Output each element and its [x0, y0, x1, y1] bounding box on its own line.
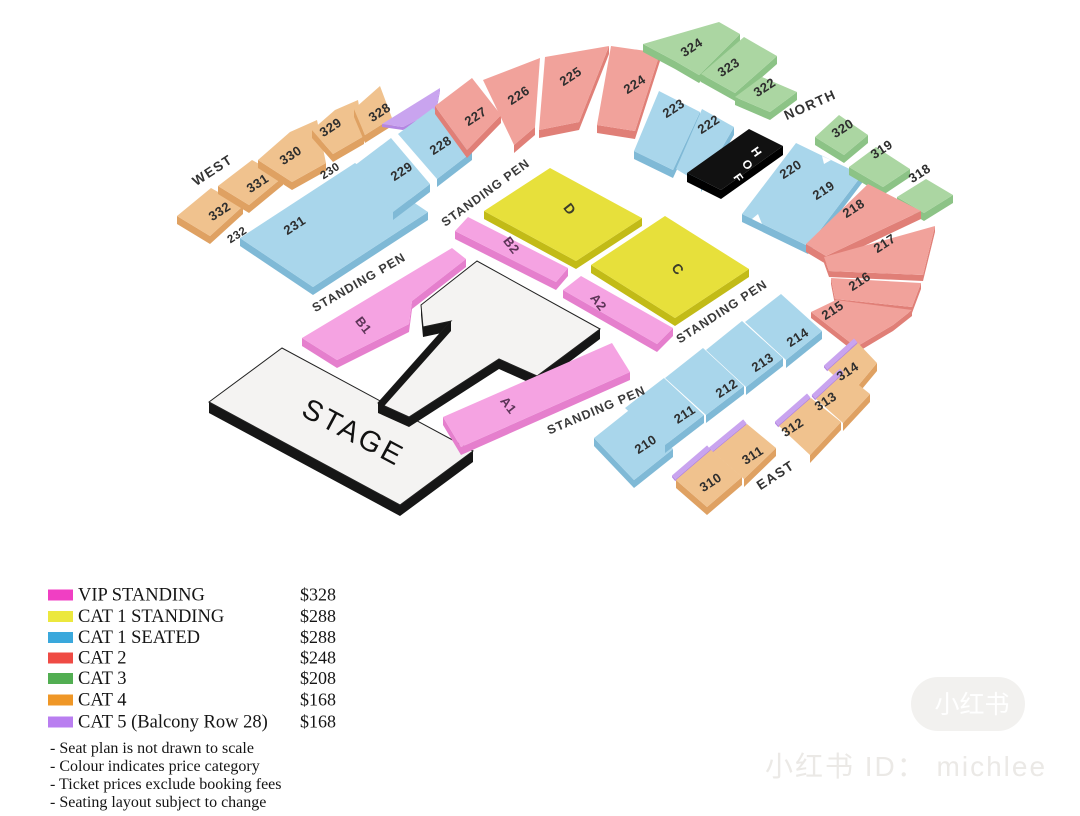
svg-text:$168: $168	[300, 712, 336, 732]
svg-text:CAT 1 SEATED: CAT 1 SEATED	[78, 628, 200, 648]
svg-text:$168: $168	[300, 690, 336, 710]
svg-text:CAT 3: CAT 3	[78, 669, 127, 689]
svg-text:$328: $328	[300, 585, 336, 605]
svg-text:CAT 4: CAT 4	[78, 691, 127, 711]
svg-text:小红书: 小红书	[934, 691, 1009, 719]
svg-text:$248: $248	[300, 648, 336, 668]
svg-text:- Seating layout subject to ch: - Seating layout subject to change	[50, 794, 266, 811]
svg-text:$288: $288	[300, 627, 336, 647]
svg-text:$208: $208	[300, 668, 336, 688]
svg-text:$288: $288	[300, 606, 336, 626]
svg-text:CAT 1 STANDING: CAT 1 STANDING	[78, 607, 224, 627]
svg-text:CAT 5 (Balcony Row 28): CAT 5 (Balcony Row 28)	[78, 713, 268, 733]
svg-text:VIP STANDING: VIP STANDING	[78, 586, 205, 606]
svg-text:- Colour indicates price categ: - Colour indicates price category	[50, 758, 260, 775]
svg-text:- Ticket prices exclude bookin: - Ticket prices exclude booking fees	[50, 776, 282, 793]
svg-text:- Seat plan is not drawn to sc: - Seat plan is not drawn to scale	[50, 740, 254, 757]
svg-text:小红书 ID： michlee: 小红书 ID： michlee	[765, 751, 1047, 782]
svg-text:CAT 2: CAT 2	[78, 649, 127, 669]
